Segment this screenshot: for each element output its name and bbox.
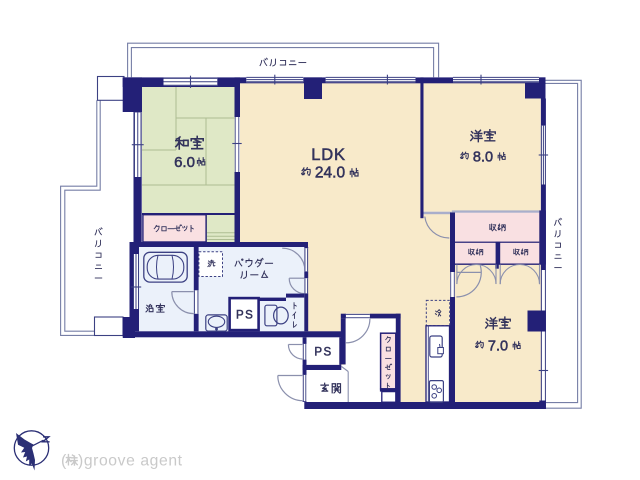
svg-text:PS: PS — [236, 310, 254, 322]
svg-text:(: ( — [61, 453, 67, 470]
svg-text:PS: PS — [314, 346, 332, 358]
svg-text:24.0: 24.0 — [315, 165, 346, 182]
svg-text:8.0: 8.0 — [473, 149, 493, 165]
svg-text:7.0: 7.0 — [488, 338, 508, 354]
svg-text:)groove agent: )groove agent — [78, 453, 183, 470]
svg-text:LDK: LDK — [311, 146, 346, 164]
svg-text:6.0: 6.0 — [174, 154, 195, 171]
